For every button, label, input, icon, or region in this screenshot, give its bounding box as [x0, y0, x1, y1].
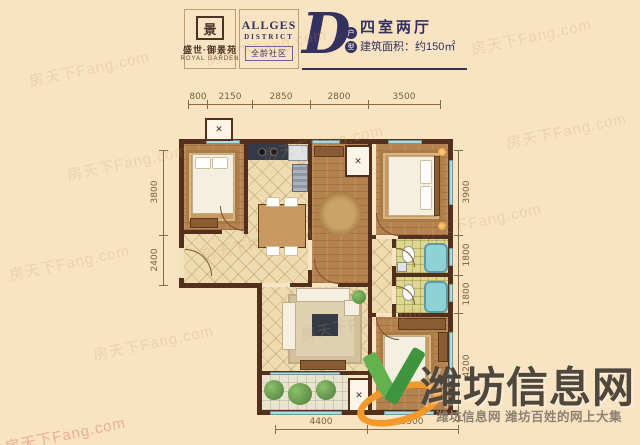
flue-shaft-icon: ✕ [345, 145, 371, 177]
dim-line-top [188, 104, 440, 105]
floorplan-page: 景 盛世·御景苑 ROYAL GARDEN ALLGES DISTRICT 全龄… [0, 0, 640, 445]
dim-tick [454, 313, 463, 314]
dim-tick [159, 285, 168, 286]
flue-shaft-icon: ✕ [205, 118, 233, 141]
window [449, 160, 453, 205]
window [449, 248, 453, 266]
dim-tick [458, 425, 459, 434]
watermark-text: 房天下Fang.com [3, 411, 127, 445]
dim-tick [454, 150, 463, 151]
window [449, 284, 453, 302]
master-pillow [420, 186, 432, 210]
watermark-text: 房天下Fang.com [91, 319, 215, 365]
dim-label: 2400 [150, 249, 160, 272]
dim-label: 2150 [219, 92, 242, 102]
dim-label: 3800 [150, 181, 160, 204]
dim-label: 800 [189, 92, 206, 102]
dim-tick [275, 425, 276, 434]
dim-tick [159, 235, 168, 236]
unit-area: 建筑面积：约150㎡ [360, 38, 455, 54]
dim-label: 3500 [393, 92, 416, 102]
master-pillow [420, 160, 432, 184]
dim-tick [454, 275, 463, 276]
master-headboard [434, 156, 440, 216]
dim-label: 4400 [310, 417, 333, 427]
dining-chair [284, 197, 298, 207]
dim-tick [368, 100, 369, 109]
nightstand-lamp [438, 148, 446, 156]
watermark-text: 房天下Fang.com [504, 107, 628, 153]
window [388, 140, 422, 144]
watermark-text: 房天下Fang.com [65, 139, 189, 185]
sofa-top [296, 288, 350, 302]
developer-seal-icon: 景 [196, 16, 224, 40]
wall [392, 273, 453, 277]
wall [184, 230, 222, 234]
wall [338, 283, 372, 287]
dining-chair [266, 197, 280, 207]
dim-line-left [163, 150, 164, 285]
dim-tick [207, 100, 208, 109]
wall [392, 239, 396, 248]
watermark-text: 房天下Fang.com [7, 239, 131, 285]
dim-label: 1800 [462, 244, 472, 267]
unit-tag-char-1: 户 [345, 27, 357, 39]
wall [290, 283, 312, 287]
watermark-text: 房天下Fang.com [469, 13, 593, 59]
plant [352, 290, 366, 304]
wall [372, 235, 376, 239]
balcony-inner-window [270, 372, 340, 375]
dim-tick [252, 100, 253, 109]
dim-label: 2850 [270, 92, 293, 102]
balcony-plant [288, 383, 312, 405]
unit-type: 四室两厅 [360, 16, 432, 37]
unit-tag-char-2: 型 [345, 41, 357, 53]
dim-label: 3900 [462, 181, 472, 204]
watermark-text: 房天下Fang.com [27, 45, 151, 91]
fridge [292, 164, 308, 192]
dim-tick [440, 100, 441, 109]
sofa-left [282, 302, 296, 350]
bedroom1-pillow [195, 157, 211, 169]
bedroom1-dresser [190, 218, 218, 228]
dim-label: 2800 [328, 92, 351, 102]
dim-label: 1800 [462, 283, 472, 306]
entry-door-gap [179, 248, 184, 278]
balcony-plant [264, 380, 284, 400]
study-round-rug [318, 192, 362, 236]
header-divider [302, 68, 467, 70]
corridor-floor [372, 239, 392, 313]
brand-tagline: 潍坊信息网 潍坊百姓的网上大集 [436, 406, 622, 425]
wall [179, 283, 262, 288]
bedroom1-pillow [212, 157, 228, 169]
bathtub [424, 281, 448, 313]
dim-tick [310, 100, 311, 109]
tv-cabinet [300, 360, 346, 370]
balcony-plant [316, 380, 336, 400]
balcony-window [270, 411, 342, 415]
wall [257, 288, 262, 415]
bathtub [424, 243, 448, 273]
